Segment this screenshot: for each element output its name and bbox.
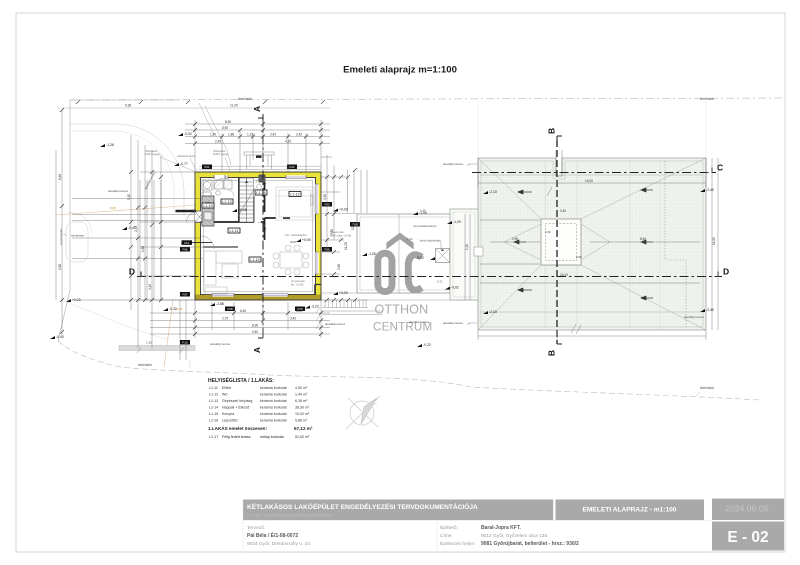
svg-text:L1-17: L1-17	[209, 435, 218, 439]
svg-text:2,60: 2,60	[337, 264, 341, 270]
svg-text:L1-15: L1-15	[203, 204, 212, 208]
svg-text:4,10: 4,10	[148, 284, 152, 290]
svg-text:2,90: 2,90	[512, 237, 518, 241]
svg-text:akadálymentes: akadálymentes	[108, 189, 129, 193]
svg-text:+0,05: +0,05	[238, 208, 247, 212]
svg-text:-3,22: -3,22	[311, 305, 319, 309]
svg-text:4,20: 4,20	[285, 140, 291, 144]
svg-text:Lépcsőtér: Lépcsőtér	[222, 419, 239, 423]
svg-text:L1-11: L1-11	[209, 386, 218, 390]
svg-text:5,08: 5,08	[110, 206, 116, 210]
svg-text:8,40: 8,40	[640, 237, 646, 241]
svg-text:-2,40: -2,40	[706, 188, 714, 192]
svg-text:Gépészeti helyiség: Gépészeti helyiség	[222, 399, 252, 403]
svg-text:akadálymentes: akadálymentes	[443, 162, 464, 166]
svg-text:telekhatár: telekhatár	[71, 234, 84, 238]
svg-text:2,75: 2,75	[222, 317, 228, 321]
svg-text:kerámia burkolat: kerámia burkolat	[260, 406, 287, 410]
svg-text:A: A	[252, 106, 262, 112]
svg-text:Nappali + Étkező: Nappali + Étkező	[222, 405, 249, 410]
svg-text:16,10: 16,10	[560, 273, 568, 277]
svg-text:1,86: 1,86	[141, 246, 145, 252]
svg-text:szomszédos: szomszédos	[59, 228, 63, 245]
svg-text:-2,10: -2,10	[489, 190, 497, 194]
svg-text:8,90: 8,90	[252, 324, 258, 328]
svg-text:D: D	[723, 267, 729, 277]
svg-text:E - 02: E - 02	[727, 529, 768, 546]
svg-text:-0,77: -0,77	[180, 162, 188, 166]
svg-text:9024 Győr, Dembinszky u. 10.: 9024 Győr, Dembinszky u. 10.	[247, 541, 311, 547]
svg-text:-0,47: -0,47	[128, 226, 136, 230]
svg-text:2,60: 2,60	[576, 255, 582, 259]
svg-text:4,50 m²: 4,50 m²	[295, 386, 308, 390]
svg-text:5,71: 5,71	[437, 280, 443, 284]
svg-text:L1-16: L1-16	[209, 419, 218, 423]
svg-text:Pál Béla / É/1-08-0072: Pál Béla / É/1-08-0072	[247, 531, 298, 539]
svg-text:38,30 m²: 38,30 m²	[295, 406, 310, 410]
svg-text:12,90: 12,90	[351, 222, 355, 230]
svg-text:11,28: 11,28	[344, 242, 348, 250]
svg-text:B: B	[547, 350, 557, 356]
svg-text:9081 Győrújbarát, belterület: 9081 Győrújbarát, belterület - hrsz.: 93…	[481, 541, 579, 547]
svg-text:kültéri agyag: kültéri agyag	[145, 152, 160, 156]
svg-text:Címe:: Címe:	[440, 533, 453, 539]
svg-text:felső síkja +2,40): felső síkja +2,40)	[330, 234, 351, 238]
svg-text:1,40: 1,40	[465, 244, 469, 250]
svg-text:Ez a terv szerzői jog által vé: Ez a terv szerzői jog által védett szell…	[247, 513, 332, 518]
svg-text:-2,88: -2,88	[216, 302, 224, 306]
svg-text:2,42: 2,42	[296, 133, 302, 137]
svg-text:akadálymentes: akadálymentes	[409, 320, 430, 324]
svg-text:Fsz. tüzelőkályha: Fsz. tüzelőkályha	[285, 233, 307, 237]
svg-text:L1-14: L1-14	[209, 406, 218, 410]
svg-text:11,00: 11,00	[712, 237, 716, 245]
svg-text:1,88: 1,88	[228, 133, 234, 137]
svg-text:67,12 m²: 67,12 m²	[294, 426, 313, 431]
svg-text:F08: F08	[227, 307, 233, 311]
svg-text:Építtető:: Építtető:	[440, 524, 458, 531]
svg-text:-1,00: -1,00	[368, 252, 376, 256]
svg-text:akadálymentes: akadálymentes	[143, 170, 156, 190]
svg-text:Acs fedélszerkezet: Acs fedélszerkezet	[413, 224, 437, 228]
svg-text:beltéri agyag: beltéri agyag	[213, 152, 228, 156]
svg-text:kerámia burkolat: kerámia burkolat	[260, 386, 287, 390]
svg-text:L1-12: L1-12	[209, 393, 218, 397]
svg-text:HELYISÉGLISTA / 1.LAKÁS:: HELYISÉGLISTA / 1.LAKÁS:	[208, 376, 274, 384]
svg-text:Tervező:: Tervező:	[247, 525, 265, 531]
svg-text:5,90: 5,90	[222, 126, 228, 130]
svg-text:Emeleti alaprajz m=1:100: Emeleti alaprajz m=1:100	[343, 65, 457, 76]
svg-text:2,40: 2,40	[560, 209, 566, 213]
svg-text:F11: F11	[184, 241, 189, 245]
svg-text:L1-15: L1-15	[209, 412, 218, 416]
svg-text:9,60: 9,60	[58, 264, 62, 270]
svg-text:8,90: 8,90	[225, 120, 231, 124]
svg-text:10,02 m²: 10,02 m²	[295, 412, 310, 416]
svg-text:1,44 m²: 1,44 m²	[295, 393, 308, 397]
svg-text:Építkezés helye:: Építkezés helye:	[440, 540, 475, 547]
svg-text:kürtő kitorkollás: kürtő kitorkollás	[420, 239, 441, 243]
svg-text:-0,22: -0,22	[169, 307, 177, 311]
svg-text:51,02 m²: 51,02 m²	[295, 435, 310, 439]
svg-text:1,23: 1,23	[247, 133, 253, 137]
svg-text:1,60: 1,60	[407, 237, 413, 241]
svg-text:-1,00: -1,00	[419, 211, 427, 215]
svg-text:6,38 m²: 6,38 m²	[295, 399, 308, 403]
svg-text:+0,00: +0,00	[339, 208, 348, 212]
svg-text:F02: F02	[289, 165, 295, 169]
svg-text:Félig fedett terasz: Félig fedett terasz	[222, 435, 251, 439]
svg-text:kerámia burkolat: kerámia burkolat	[260, 419, 287, 423]
svg-text:-0,40: -0,40	[56, 335, 64, 339]
svg-text:telekhatár: telekhatár	[700, 97, 715, 101]
svg-text:L1-16: L1-16	[256, 191, 265, 195]
svg-text:kerámia burkolat: kerámia burkolat	[260, 399, 287, 403]
svg-text:1.LAKÁS emelet összesen:: 1.LAKÁS emelet összesen:	[208, 425, 267, 431]
svg-text:L1-11: L1-11	[230, 229, 239, 233]
svg-text:F01: F01	[204, 165, 210, 169]
svg-text:-0,02: -0,02	[451, 286, 459, 290]
svg-text:6,40: 6,40	[240, 309, 246, 313]
svg-text:3,40: 3,40	[290, 317, 296, 321]
svg-text:Előtér: Előtér	[222, 386, 232, 390]
svg-text:WC: WC	[222, 393, 228, 397]
svg-text:1,50: 1,50	[210, 133, 216, 137]
svg-text:-0,22: -0,22	[423, 343, 431, 347]
svg-text:-1,26: -1,26	[106, 143, 114, 147]
svg-text:L1-13: L1-13	[222, 200, 231, 204]
svg-text:9012 Győr, Győzelem utca 135.: 9012 Győr, Győzelem utca 135.	[481, 533, 548, 539]
svg-text:-0,02: -0,02	[184, 132, 192, 136]
svg-text:2,45: 2,45	[215, 140, 221, 144]
svg-text:vakolatrendszer: vakolatrendszer	[177, 154, 195, 158]
svg-text:8,46: 8,46	[58, 174, 62, 180]
svg-text:2,42: 2,42	[270, 133, 276, 137]
svg-text:fel. +2,40): fel. +2,40)	[291, 283, 304, 287]
svg-text:telekhatár: telekhatár	[238, 97, 253, 101]
svg-text:2,40: 2,40	[545, 230, 551, 234]
svg-text:5,88 m²: 5,88 m²	[295, 419, 308, 423]
svg-text:-2,40: -2,40	[706, 308, 714, 312]
svg-text:F06: F06	[182, 248, 188, 252]
svg-text:Konyha: Konyha	[222, 412, 234, 416]
svg-text:-1,00: -1,00	[453, 220, 461, 224]
svg-text:műlap burkolat: műlap burkolat	[260, 435, 284, 439]
svg-text:A: A	[252, 347, 262, 353]
svg-text:akadálymentes: akadálymentes	[325, 322, 346, 326]
svg-text:kerámia burkolat: kerámia burkolat	[260, 412, 287, 416]
svg-text:Baral-Jopra KFT.: Baral-Jopra KFT.	[481, 525, 521, 531]
svg-text:EMELETI ALAPRAJZ - m1:100: EMELETI ALAPRAJZ - m1:100	[583, 507, 677, 514]
svg-text:14,00: 14,00	[585, 179, 593, 183]
svg-text:L1-14: L1-14	[250, 258, 259, 262]
svg-text:telekhatár: telekhatár	[700, 386, 715, 390]
svg-text:akadálymentes: akadálymentes	[684, 315, 705, 319]
svg-text:OTTHON: OTTHON	[375, 303, 429, 317]
svg-text:3,50: 3,50	[323, 194, 327, 200]
svg-text:+0,00: +0,00	[302, 238, 311, 242]
svg-text:telekhatár: telekhatár	[138, 363, 153, 367]
svg-text:L1-13: L1-13	[209, 399, 218, 403]
svg-text:akadálymentes: akadálymentes	[443, 321, 464, 325]
svg-text:akadálymentes: akadálymentes	[210, 342, 231, 346]
svg-text:F07: F07	[182, 293, 188, 297]
svg-text:+0,00: +0,00	[339, 291, 348, 295]
svg-text:L1-12: L1-12	[290, 193, 299, 197]
svg-text:-2,10: -2,10	[489, 310, 497, 314]
svg-text:11,90: 11,90	[230, 104, 238, 108]
svg-text:2024.06.06.: 2024.06.06.	[725, 504, 770, 514]
svg-text:6,40: 6,40	[296, 309, 302, 313]
svg-text:KÉTLAKÁSOS LAKÓÉPÜLET ENGEDÉLY: KÉTLAKÁSOS LAKÓÉPÜLET ENGEDÉLYEZÉSI TERV…	[247, 502, 478, 511]
svg-text:kerámia burkolat: kerámia burkolat	[260, 393, 287, 397]
svg-text:F10: F10	[182, 341, 188, 345]
svg-text:5,10: 5,10	[127, 194, 131, 200]
svg-text:-0,02: -0,02	[416, 256, 424, 260]
svg-text:B: B	[547, 128, 557, 134]
svg-text:9,38: 9,38	[125, 104, 131, 108]
svg-text:1,35: 1,35	[146, 341, 152, 345]
svg-text:9,40: 9,40	[252, 330, 258, 334]
